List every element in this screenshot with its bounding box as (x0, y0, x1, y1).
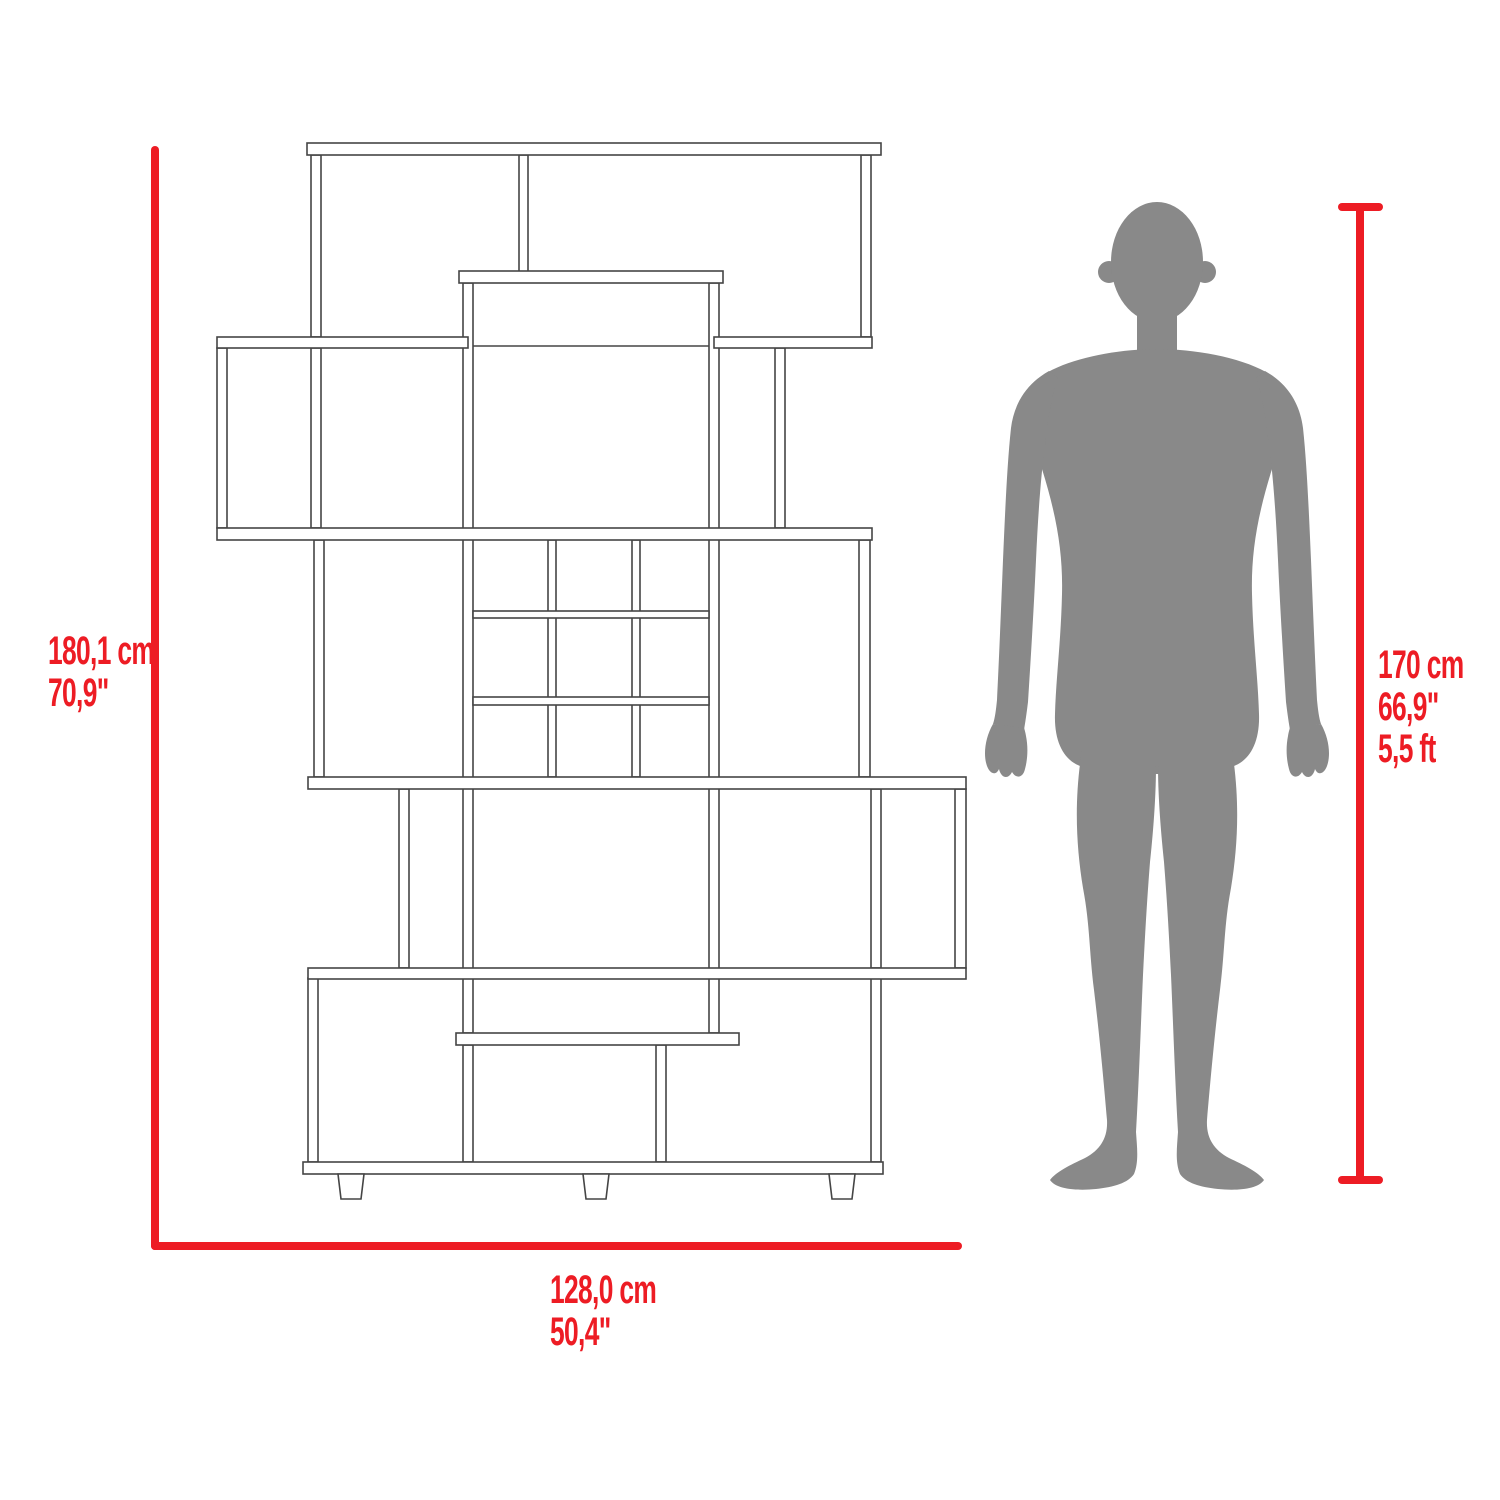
torso (1013, 349, 1301, 774)
top-board (307, 143, 881, 155)
hand-left (985, 724, 1027, 777)
cubby-divider (632, 540, 640, 777)
side-panel (861, 155, 871, 337)
hand-right (1287, 724, 1329, 777)
cubby-shelf (473, 611, 709, 618)
divider-panel (519, 155, 528, 273)
divider-panel (656, 1045, 666, 1162)
height-label-cm: 180,1 cm (48, 629, 154, 674)
neck (1137, 295, 1177, 357)
side-panel (859, 540, 870, 777)
person-height-label-inches: 66,9" (1378, 685, 1439, 730)
side-panel (314, 540, 324, 777)
column-side-panel (709, 283, 719, 1033)
divider-panel (311, 348, 321, 528)
divider-panel (871, 789, 881, 968)
column-bottom-board (456, 1033, 739, 1045)
foot (583, 1174, 609, 1199)
shelf-board (308, 968, 966, 979)
shelf-board (217, 337, 468, 348)
divider-panel (463, 1045, 473, 1162)
person-height-label-cm: 170 cm (1378, 643, 1464, 688)
width-label-inches: 50,4" (550, 1310, 611, 1355)
side-panel (399, 789, 409, 968)
side-panel (311, 155, 321, 337)
person-silhouette (985, 202, 1329, 1190)
side-panel (955, 789, 966, 968)
height-label-inches: 70,9" (48, 671, 109, 716)
bottom-board (303, 1162, 883, 1174)
cubby-divider (548, 540, 556, 777)
diagram-canvas: 180,1 cm 70,9" 128,0 cm 50,4" 170 cm 66,… (0, 0, 1500, 1500)
bookcase-drawing (217, 143, 966, 1199)
shelf-board (308, 777, 966, 789)
side-panel (775, 348, 785, 528)
leg-left (1050, 750, 1156, 1190)
person-height-label-feet: 5,5 ft (1378, 727, 1436, 772)
side-panel (217, 348, 227, 528)
foot (829, 1174, 855, 1199)
shelf-board (217, 528, 872, 540)
width-label-cm: 128,0 cm (550, 1268, 656, 1313)
shelf-board (714, 337, 872, 348)
foot (338, 1174, 364, 1199)
side-panel (308, 978, 318, 1162)
column-side-panel (463, 283, 473, 1033)
product-dimension-diagram: 180,1 cm 70,9" 128,0 cm 50,4" 170 cm 66,… (0, 0, 1500, 1500)
side-panel (871, 978, 881, 1162)
column-top-board (459, 271, 723, 283)
leg-right (1158, 750, 1264, 1190)
cubby-shelf (473, 697, 709, 705)
person-height-dimension-line (1342, 207, 1379, 1180)
